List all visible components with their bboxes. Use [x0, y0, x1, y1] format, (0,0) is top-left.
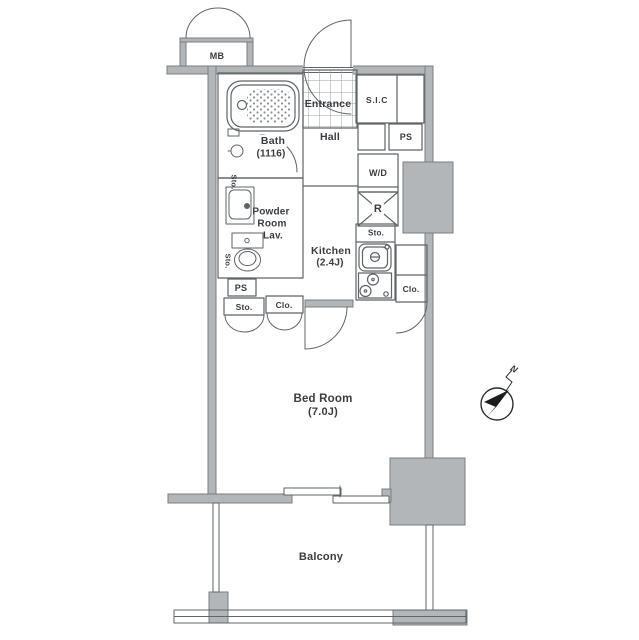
ps-upper-label: PS [400, 132, 412, 142]
column-lower [390, 458, 465, 525]
stove-icon [359, 273, 392, 298]
clo-lower-label: Clo. [276, 300, 293, 310]
powder-room-label-2: Room [257, 219, 286, 230]
sto-counter-label: Sto. [366, 229, 386, 238]
clo-kitchen-label: Clo. [403, 284, 420, 294]
sto-basin-label: Sto. [230, 175, 239, 190]
hall-label: Hall [320, 131, 340, 143]
bedroom-door-lintel [305, 300, 353, 307]
powder-room-label-3: Lav. [263, 231, 283, 242]
bathtub-icon [227, 81, 299, 131]
sink-icon [359, 244, 391, 271]
wall-right-mid [425, 233, 433, 458]
kitchen-size-label: (2.4J) [316, 258, 343, 269]
balcony-block-left [209, 592, 228, 623]
balcony-label: Balcony [299, 551, 343, 563]
kitchen-label: Kitchen [311, 245, 351, 257]
mb-box-top [180, 38, 253, 42]
sto-toilet-label: Sto. [224, 254, 233, 269]
powder-room-label-1: Powder [252, 207, 289, 218]
washer-dryer-label: W/D [369, 168, 387, 178]
bath-label: Bath [259, 135, 287, 147]
floor-plan-drawing [0, 0, 639, 640]
bedroom-door-arc-icon [305, 307, 347, 349]
wall-south-left [168, 494, 292, 503]
compass-icon [481, 370, 513, 420]
entrance-label: Entrance [305, 98, 352, 110]
closet-swing-doors-icon [225, 313, 302, 332]
ps-lower-label: PS [235, 283, 247, 293]
column-upper [403, 162, 453, 233]
bath-size-label: (1116) [254, 149, 287, 160]
bed-room-size-label: (7.0J) [308, 406, 338, 418]
mb-door-arcs-icon [186, 8, 250, 38]
shower-icon [228, 129, 243, 157]
clo-kitchen-door-arc-icon [397, 302, 428, 333]
bed-room-label: Bed Room [293, 393, 352, 405]
sto-lower-label: Sto. [236, 302, 253, 312]
sic-label: S.I.C [366, 95, 388, 105]
refrigerator-label: R [372, 203, 384, 215]
small-box [358, 124, 385, 150]
wall-left [208, 66, 216, 503]
mb-label: MB [210, 51, 224, 61]
wall-right-upper [425, 66, 433, 162]
washbasin-icon [226, 187, 254, 224]
sliding-window-icon [284, 486, 389, 503]
toilet-icon [232, 233, 263, 271]
floor-plan: MB Entrance S.I.C PS Hall Bath (1116) W/… [0, 0, 639, 640]
